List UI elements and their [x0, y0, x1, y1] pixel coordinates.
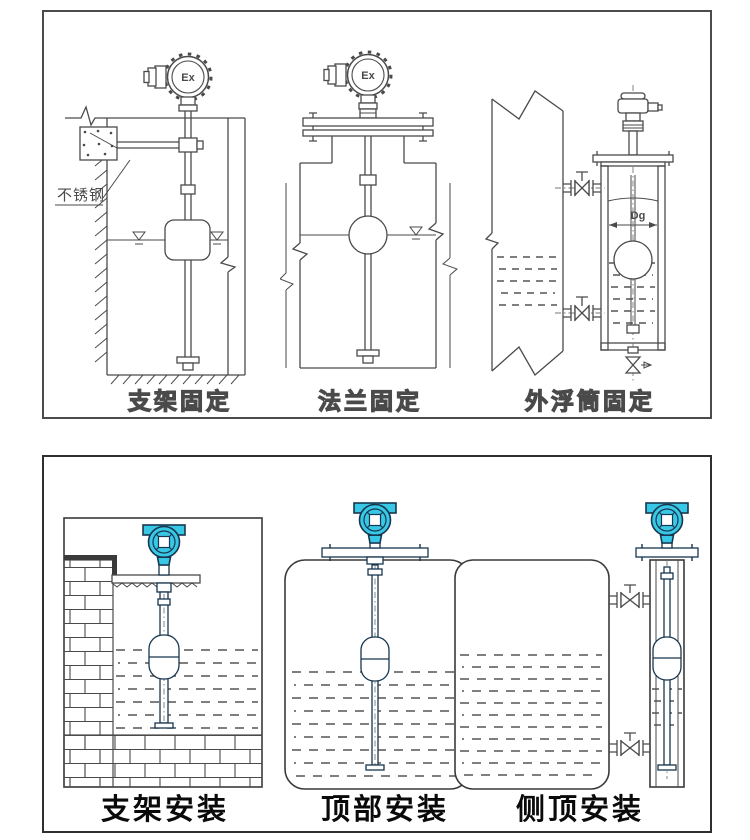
valve-bottom-icon [609, 733, 650, 756]
valve-top-icon [609, 585, 650, 608]
ex-label: Ex [361, 70, 375, 82]
caption-flange-fixing: 法兰固定 [280, 388, 460, 414]
transmitter-head-icon [143, 525, 185, 575]
junction-box-head-icon [618, 85, 662, 155]
tank-wall-section [486, 91, 563, 375]
ex-label: Ex [181, 72, 195, 84]
float [149, 635, 179, 679]
page: Ex 不锈钢 [0, 0, 750, 840]
water [116, 650, 258, 728]
transmitter-head-icon [354, 503, 396, 548]
figure-external-chamber-drawing: Dg [475, 85, 710, 387]
float [653, 637, 681, 680]
float [361, 637, 389, 681]
caption-bracket-mounting: 支架安装 [55, 793, 275, 827]
transmitter-head-ex-icon: Ex [324, 52, 391, 109]
tank-wall-break [221, 118, 235, 375]
figure-top-mounting-drawing [282, 497, 477, 792]
tank-outline [455, 560, 609, 789]
tank-wall-right [429, 163, 443, 368]
transmitter-head-ex-icon: Ex [144, 54, 211, 111]
transmitter-head-icon [646, 503, 688, 548]
caption-top-mounting: 顶部安装 [275, 793, 495, 827]
drain-valve-icon [626, 343, 651, 383]
brick-floor [64, 735, 262, 787]
ceiling-line [65, 107, 245, 125]
shelf-bracket [112, 575, 200, 587]
float [349, 216, 387, 254]
level-marker [410, 227, 422, 239]
figure-bracket-mounting-drawing [60, 497, 265, 792]
float [165, 220, 210, 260]
material-label: 不锈钢 [57, 187, 105, 204]
figure-flange-fixing-drawing: Ex [280, 28, 465, 380]
ground-hatching [111, 375, 239, 384]
tank-nozzle [300, 136, 436, 163]
figure-bracket-fixing-drawing: Ex 不锈钢 [55, 48, 255, 388]
panel-mounting-methods: 支架安装 顶部安装 侧顶安装 [42, 455, 712, 833]
float [614, 241, 652, 279]
caption-bracket-fixing: 支架固定 [90, 388, 270, 414]
bracket-arm [117, 138, 203, 152]
caption-external-chamber-fixing: 外浮筒固定 [490, 388, 690, 414]
caption-side-top-mounting: 侧顶安装 [470, 793, 690, 827]
tank-wall-left [293, 163, 307, 368]
panel-fixing-methods: Ex 不锈钢 [42, 10, 712, 419]
figure-side-top-mounting-drawing [452, 497, 710, 792]
